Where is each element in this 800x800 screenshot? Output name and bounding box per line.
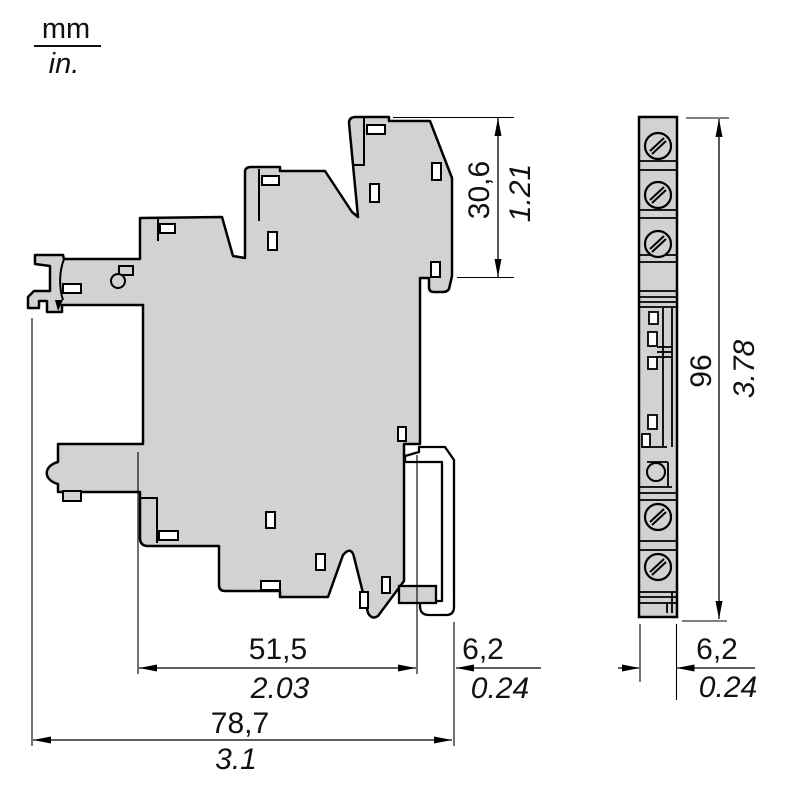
slot	[432, 163, 441, 180]
front-foot-tab	[63, 491, 81, 501]
dim-top-height-in: 1.21	[504, 164, 537, 222]
slot	[261, 581, 280, 590]
slot	[370, 184, 379, 202]
unit-mm-label: mm	[42, 13, 90, 45]
dim-rail-in: 0.24	[471, 672, 529, 705]
slot	[431, 262, 440, 277]
units-legend: mm in.	[34, 13, 101, 80]
side-view-body	[28, 117, 452, 617]
dim-total-depth-in: 3.1	[215, 743, 257, 776]
slot	[160, 224, 175, 233]
screw-icon	[645, 133, 671, 159]
side-view	[28, 117, 454, 617]
slot	[382, 577, 390, 593]
slot	[316, 554, 325, 570]
dim-width-mm: 6,2	[696, 633, 738, 666]
front-view	[639, 117, 677, 617]
dim-height-mm: 96	[685, 354, 718, 387]
screw-icon	[645, 182, 671, 208]
slot	[262, 176, 279, 185]
dim-top-height-mm: 30,6	[463, 161, 496, 219]
dim-rail-mm: 6,2	[462, 633, 504, 666]
dimension-drawing-page: mm in.	[0, 0, 800, 800]
dim-total-depth-mm: 78,7	[211, 707, 269, 740]
slot	[159, 531, 178, 540]
dim-depth-mm: 51,5	[249, 633, 307, 666]
slot	[367, 125, 385, 134]
screw-icon	[645, 504, 671, 530]
screw-icon	[645, 231, 671, 257]
dim-height-in: 3.78	[728, 339, 761, 398]
screw-icon	[645, 554, 671, 580]
slot	[360, 592, 368, 608]
relay-socket-dimension-drawing: mm in.	[0, 0, 800, 800]
slot	[266, 512, 275, 528]
slot	[268, 232, 277, 250]
slot	[398, 427, 406, 441]
dim-depth-in: 2.03	[250, 672, 310, 705]
dim-width-in: 0.24	[699, 671, 757, 704]
unit-in-label: in.	[49, 48, 80, 80]
slot	[63, 284, 81, 293]
latch-pin-circle	[111, 274, 125, 288]
